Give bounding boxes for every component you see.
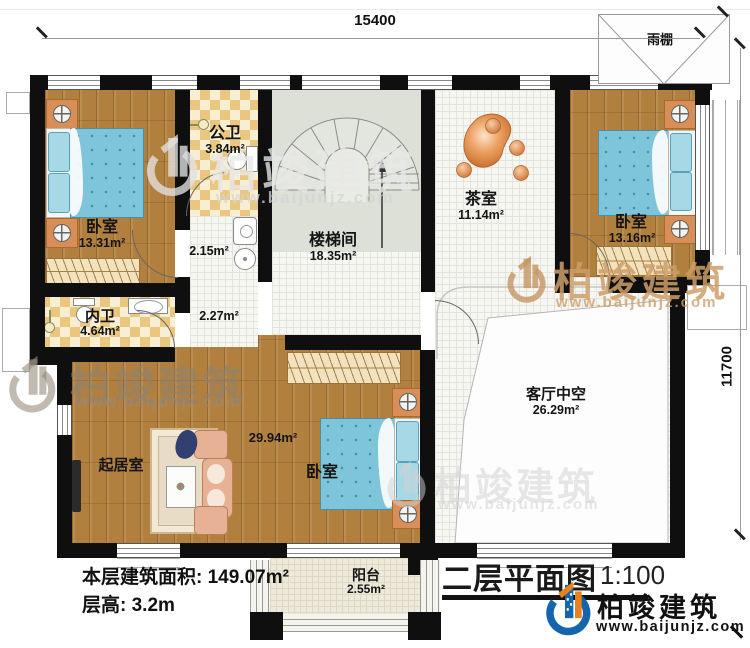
- tea-table: [452, 108, 530, 188]
- watermark-url: www.baijunjz.com: [556, 294, 717, 311]
- bed-pillow: [670, 172, 692, 211]
- room-label-stairwell: 楼梯间: [293, 233, 373, 250]
- wall: [420, 350, 435, 543]
- armchair: [194, 506, 228, 535]
- dimension-line-top: [42, 38, 700, 39]
- room-area-stairwell: 18.35m²: [298, 250, 368, 263]
- washer: [233, 217, 257, 245]
- room-label-inner-bath: 内卫: [70, 309, 130, 325]
- balcony-post: [250, 612, 283, 640]
- room-label-bedroom1: 卧室: [62, 220, 142, 237]
- window: [152, 75, 197, 90]
- room-area-bedroom2: 13.16m²: [597, 232, 667, 245]
- room-area-tea-room: 11.14m²: [445, 209, 517, 222]
- room-area-bedroom3: 29.94m²: [240, 431, 306, 445]
- floor-height-text: 层高: 3.2m: [82, 590, 175, 617]
- wall: [57, 543, 117, 558]
- room-area-hall-small: 2.15m²: [182, 245, 236, 258]
- brand-url: www.baijunjz.com: [596, 619, 745, 635]
- nightstand: [664, 100, 696, 129]
- nightstand: [46, 99, 78, 129]
- armchair: [194, 430, 228, 459]
- brand-logo-icon: [545, 574, 595, 644]
- room-label-void: 客厅中空: [500, 387, 612, 403]
- dimension-tick: [36, 26, 48, 38]
- room-label-bedroom3: 卧室: [290, 465, 354, 482]
- lamp-icon: [671, 220, 689, 238]
- wall: [555, 90, 570, 277]
- room-area-bedroom1: 13.31m²: [60, 237, 144, 250]
- room-label-tea-room: 茶室: [447, 192, 515, 209]
- watermark-url: www.baijunjz.com: [438, 496, 599, 513]
- window: [117, 543, 180, 558]
- canopy-label: 雨棚: [634, 33, 686, 47]
- coffee-table: [166, 466, 196, 508]
- bed-pillow: [670, 133, 692, 172]
- balcony-railing: [283, 614, 408, 632]
- wall: [285, 335, 421, 350]
- wall: [180, 543, 287, 558]
- room-label-balcony: 阳台: [336, 568, 396, 583]
- room-area-inner-bath: 4.64m²: [70, 325, 130, 338]
- room-label-public-bath: 公卫: [193, 126, 257, 143]
- window: [48, 75, 100, 90]
- lamp-icon: [399, 393, 417, 411]
- toilet-tank: [73, 298, 95, 306]
- lamp-icon: [671, 105, 689, 123]
- tv: [72, 460, 81, 512]
- dimension-top-value: 15400: [325, 12, 425, 29]
- dimension-line-right: [740, 48, 741, 540]
- floor-area-text: 本层建筑面积: 149.07m²: [82, 562, 289, 589]
- room-area-balcony: 2.55m²: [338, 583, 394, 596]
- wardrobe: [287, 352, 401, 384]
- watermark-logo-icon: [386, 456, 430, 514]
- window: [695, 105, 710, 250]
- room-label-bedroom2: 卧室: [598, 215, 664, 232]
- nightstand: [664, 215, 696, 244]
- balcony-post: [408, 612, 441, 640]
- window: [408, 75, 452, 90]
- window-sill: [6, 92, 30, 114]
- balcony-railing: [420, 560, 440, 612]
- room-area-hall-lower: 2.27m²: [192, 310, 246, 323]
- window: [520, 75, 550, 90]
- room-area-public-bath: 3.84m²: [192, 143, 258, 156]
- bed-pillow: [48, 173, 70, 213]
- floor-plan-canvas: 雨棚 15400 11700 柏竣建筑 www.baijunjz.com 柏竣建…: [0, 0, 750, 648]
- wall: [175, 297, 190, 313]
- wall: [30, 283, 190, 297]
- lamp-icon: [53, 105, 71, 123]
- wall: [30, 75, 45, 365]
- bed-pillow: [48, 132, 70, 172]
- ceiling-light-icon: [44, 322, 55, 333]
- wardrobe: [46, 258, 140, 285]
- bay-window-lines: [712, 100, 740, 255]
- window: [240, 75, 290, 90]
- dimension-right-value: 11700: [719, 337, 736, 397]
- page-frame-line: [0, 9, 750, 10]
- watermark-url: www.baijunjz.com: [76, 394, 242, 412]
- sink-round: [234, 248, 256, 270]
- watermark-url: www.baijunjz.com: [216, 188, 395, 208]
- room-label-living: 起居室: [86, 458, 156, 474]
- wall: [421, 90, 435, 292]
- balcony-sliding-door: [287, 543, 400, 558]
- room-area-void: 26.29m²: [508, 404, 604, 417]
- watermark-logo-icon: [6, 354, 62, 416]
- watermark-logo-icon: [506, 252, 550, 308]
- rain-canopy: [598, 14, 730, 84]
- wall: [670, 293, 685, 558]
- window: [302, 75, 380, 90]
